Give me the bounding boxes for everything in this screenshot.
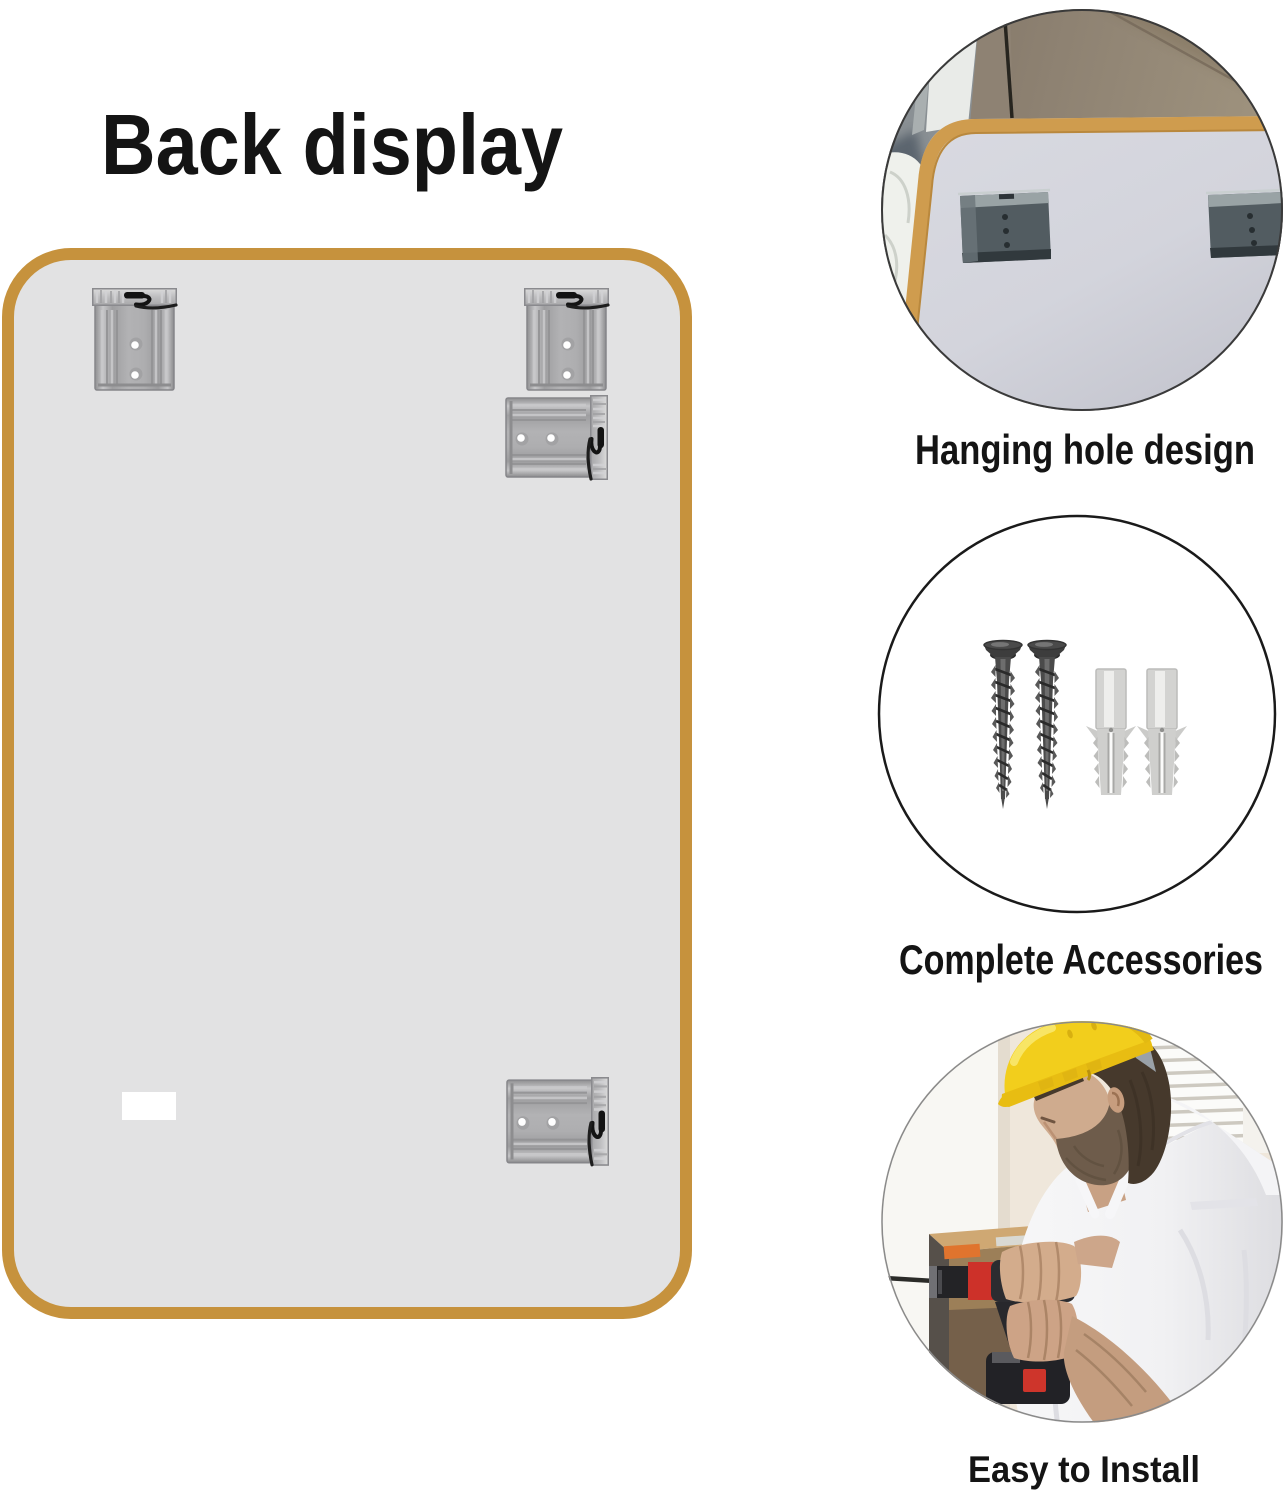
- svg-text:Hanging hole design: Hanging hole design: [915, 426, 1255, 473]
- svg-text:Easy to Install: Easy to Install: [968, 1449, 1200, 1490]
- svg-text:Complete Accessories: Complete Accessories: [899, 936, 1263, 983]
- svg-text:Back display: Back display: [101, 98, 563, 193]
